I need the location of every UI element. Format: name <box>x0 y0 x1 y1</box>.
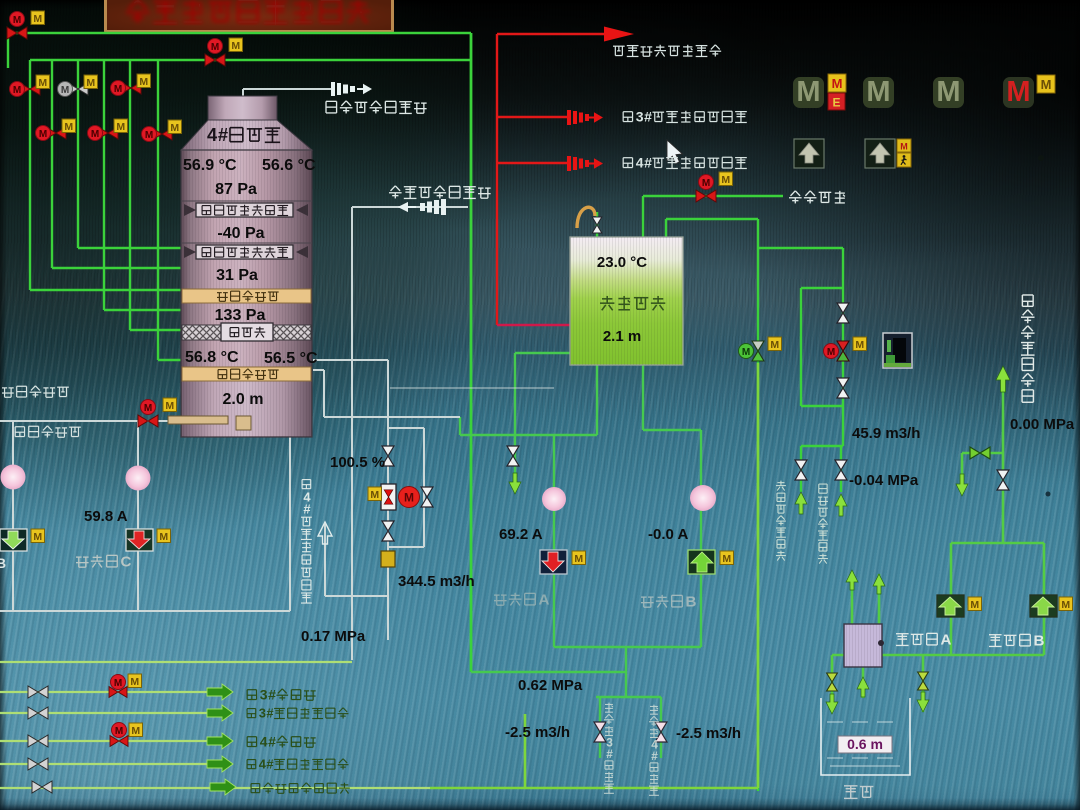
svg-text:M: M <box>139 76 148 88</box>
svg-text:M: M <box>86 77 95 89</box>
svg-text:M: M <box>13 85 21 96</box>
svg-text:#: # <box>651 749 658 763</box>
svg-text:#: # <box>644 108 652 124</box>
svg-text:A: A <box>941 631 952 648</box>
svg-text:133 Pa: 133 Pa <box>215 307 266 324</box>
svg-text:56.9 °C: 56.9 °C <box>183 157 237 174</box>
svg-text:69.2 A: 69.2 A <box>499 526 543 543</box>
svg-text:M: M <box>370 489 379 501</box>
svg-text:0.17 MPa: 0.17 MPa <box>301 628 366 645</box>
svg-text:#: # <box>268 733 276 749</box>
svg-text:-2.5 m3/h: -2.5 m3/h <box>676 725 741 742</box>
svg-text:31 Pa: 31 Pa <box>216 267 258 284</box>
svg-text:-0.0 A: -0.0 A <box>648 526 688 543</box>
svg-text:M: M <box>855 339 864 351</box>
svg-text:M: M <box>404 491 414 505</box>
svg-text:M: M <box>866 76 890 108</box>
svg-text:M: M <box>91 129 99 140</box>
svg-text:B: B <box>0 555 6 571</box>
svg-text:56.8 °C: 56.8 °C <box>185 349 239 366</box>
svg-text:M: M <box>13 15 21 26</box>
svg-text:M: M <box>770 339 779 351</box>
svg-text:M: M <box>721 174 730 186</box>
svg-text:M: M <box>742 347 750 358</box>
svg-text:M: M <box>1061 599 1070 611</box>
svg-text:M: M <box>159 531 168 543</box>
svg-text:#: # <box>218 124 228 145</box>
svg-text:M: M <box>832 76 843 91</box>
svg-text:M: M <box>574 553 583 565</box>
svg-text:B: B <box>1034 632 1045 649</box>
svg-text:56.6 °C: 56.6 °C <box>262 157 316 174</box>
svg-text:344.5 m3/h: 344.5 m3/h <box>398 573 475 590</box>
svg-text:87 Pa: 87 Pa <box>215 181 257 198</box>
svg-text:M: M <box>144 403 152 414</box>
svg-text:M: M <box>900 142 908 152</box>
svg-text:M: M <box>211 42 219 53</box>
svg-text:M: M <box>970 599 979 611</box>
svg-text:C: C <box>121 553 132 570</box>
svg-text:M: M <box>1041 77 1052 92</box>
svg-text:M: M <box>145 130 153 141</box>
svg-text:M: M <box>231 40 240 52</box>
svg-text:0.62 MPa: 0.62 MPa <box>518 677 583 694</box>
svg-text:M: M <box>33 13 42 25</box>
svg-text:0.00 MPa: 0.00 MPa <box>1010 416 1075 433</box>
svg-text:45.9 m3/h: 45.9 m3/h <box>852 425 920 442</box>
svg-text:M: M <box>1006 76 1030 108</box>
svg-text:-2.5 m3/h: -2.5 m3/h <box>505 724 570 741</box>
svg-text:M: M <box>115 726 123 737</box>
svg-text:#: # <box>644 154 652 170</box>
svg-text:23.0 °C: 23.0 °C <box>597 254 647 271</box>
svg-text:#: # <box>266 757 273 772</box>
svg-text:M: M <box>165 400 174 412</box>
svg-text:M: M <box>114 678 122 689</box>
svg-text:3: 3 <box>636 108 644 124</box>
svg-text:M: M <box>116 121 125 133</box>
svg-text:M: M <box>39 129 47 140</box>
svg-text:M: M <box>131 725 140 737</box>
svg-text:M: M <box>38 77 47 89</box>
svg-text:56.5 °C: 56.5 °C <box>264 350 318 367</box>
svg-text:M: M <box>936 76 960 108</box>
svg-text:4: 4 <box>207 124 218 145</box>
svg-text:#: # <box>303 502 310 517</box>
svg-text:M: M <box>827 347 835 358</box>
svg-text:M: M <box>61 85 69 96</box>
svg-text:M: M <box>722 553 731 565</box>
svg-text:4: 4 <box>260 733 268 749</box>
svg-text:-40 Pa: -40 Pa <box>217 225 264 242</box>
svg-text:M: M <box>130 676 139 688</box>
svg-text:M: M <box>64 121 73 133</box>
svg-text:2.1 m: 2.1 m <box>603 328 641 345</box>
svg-text:59.8 A: 59.8 A <box>84 508 128 525</box>
svg-text:#: # <box>606 747 613 761</box>
svg-text:3: 3 <box>259 706 266 721</box>
svg-text:E: E <box>832 96 840 110</box>
svg-text:4: 4 <box>636 154 644 170</box>
svg-text:3: 3 <box>260 686 268 702</box>
svg-text:A: A <box>539 591 550 608</box>
svg-text:#: # <box>268 686 276 702</box>
svg-text:M: M <box>170 122 179 134</box>
svg-text:M: M <box>33 531 42 543</box>
svg-text:-0.04 MPa: -0.04 MPa <box>849 472 919 489</box>
svg-text:M: M <box>114 84 122 95</box>
svg-text:100.5 %: 100.5 % <box>330 454 385 471</box>
svg-text:M: M <box>702 178 710 189</box>
svg-text:2.0 m: 2.0 m <box>223 391 264 408</box>
svg-text:B: B <box>686 593 697 610</box>
svg-text:0.6 m: 0.6 m <box>847 736 883 752</box>
svg-text:M: M <box>796 76 820 108</box>
svg-text:#: # <box>266 706 273 721</box>
